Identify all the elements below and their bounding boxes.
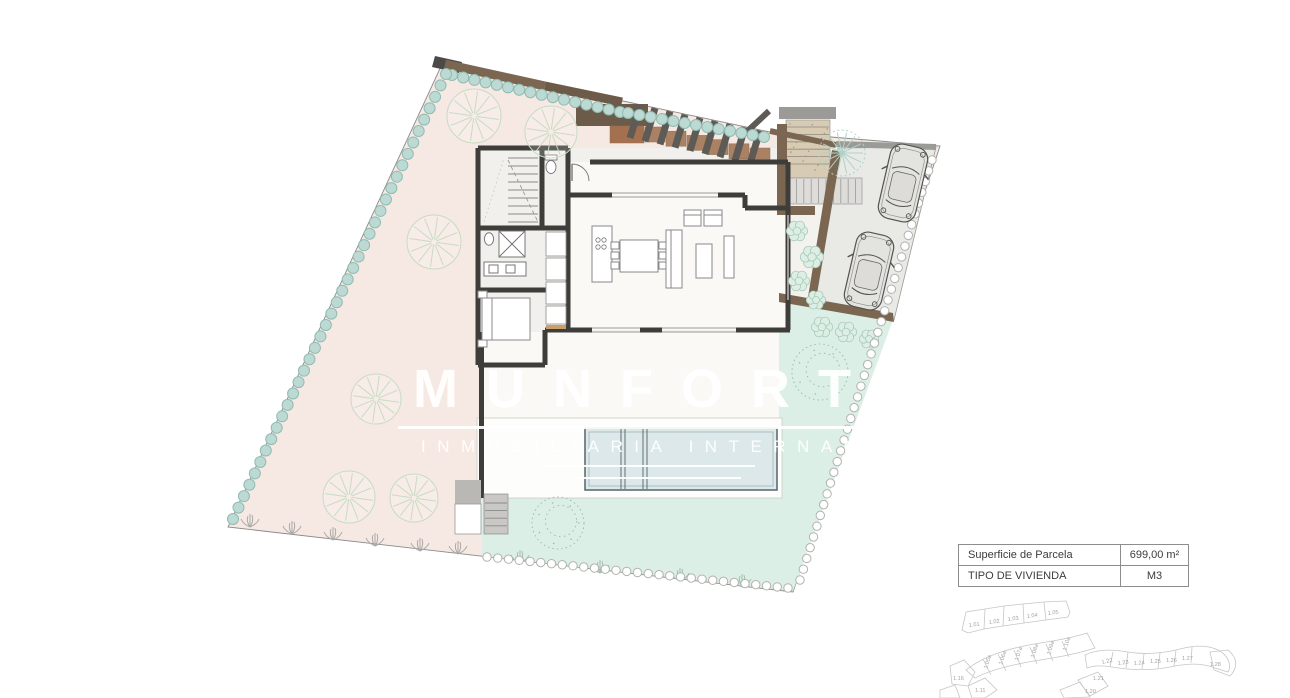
plot-label: 1.26 (1166, 658, 1177, 664)
plot-label: 1.11 (975, 688, 985, 694)
plot-label: 1.06a (998, 650, 1008, 666)
plot-label: 1.28 (1210, 662, 1221, 668)
bedroom-bed-icon (478, 291, 530, 347)
site-plan-drawing: 1.01 1.02 1.03 1.04 1.05 1.05a 1.06a 1.0… (0, 0, 1290, 698)
plot-label: 1.08a (1030, 643, 1040, 659)
plot-label: 1.02 (989, 619, 1001, 626)
plot-label: 1.25 (1150, 659, 1161, 665)
parcel-area-label: Superficie de Parcela (959, 545, 1121, 565)
plot-label: 1.03 (1008, 616, 1020, 623)
keyplan: 1.01 1.02 1.03 1.04 1.05 1.05a 1.06a 1.0… (940, 601, 1236, 698)
plot-label: 1.24 (1134, 660, 1145, 667)
dwelling-type-value: M3 (1121, 566, 1188, 586)
plot-label: 1.04 (1027, 613, 1039, 620)
watermark-rule (540, 465, 755, 467)
watermark-brand: MUNFORT (413, 358, 879, 420)
parcel-area-value: 699,00 m² (1121, 545, 1188, 565)
plot-label: 1.20 (1085, 689, 1096, 695)
plot-label: 1.05 (1048, 610, 1060, 617)
plot-label: 1.05a (983, 654, 993, 670)
watermark-rule (573, 477, 741, 479)
table-row: TIPO DE VIVIENDA M3 (959, 565, 1188, 586)
plot-label: 1.10a (1062, 636, 1072, 652)
plot-label: 1.16 (953, 676, 964, 682)
plot-label: 1.23 (1117, 660, 1129, 667)
plot-label: 1.21 (1093, 676, 1104, 682)
dwelling-type-label: TIPO DE VIVIENDA (959, 566, 1121, 586)
parcel-info-table: Superficie de Parcela 699,00 m² TIPO DE … (958, 544, 1189, 587)
watermark-tagline: INMOBILIARIA INTERNACIONAL (421, 437, 976, 457)
site-plan-sheet: 1.01 1.02 1.03 1.04 1.05 1.05a 1.06a 1.0… (0, 0, 1290, 698)
plot-label: 1.22 (1101, 658, 1113, 666)
plot-label: 1.27 (1182, 656, 1193, 662)
plot-label: 1.01 (969, 622, 981, 629)
watermark-rule (398, 426, 988, 429)
kitchen-island-icon (592, 226, 612, 282)
table-row: Superficie de Parcela 699,00 m² (959, 545, 1188, 565)
dining-set-icon (611, 240, 667, 272)
